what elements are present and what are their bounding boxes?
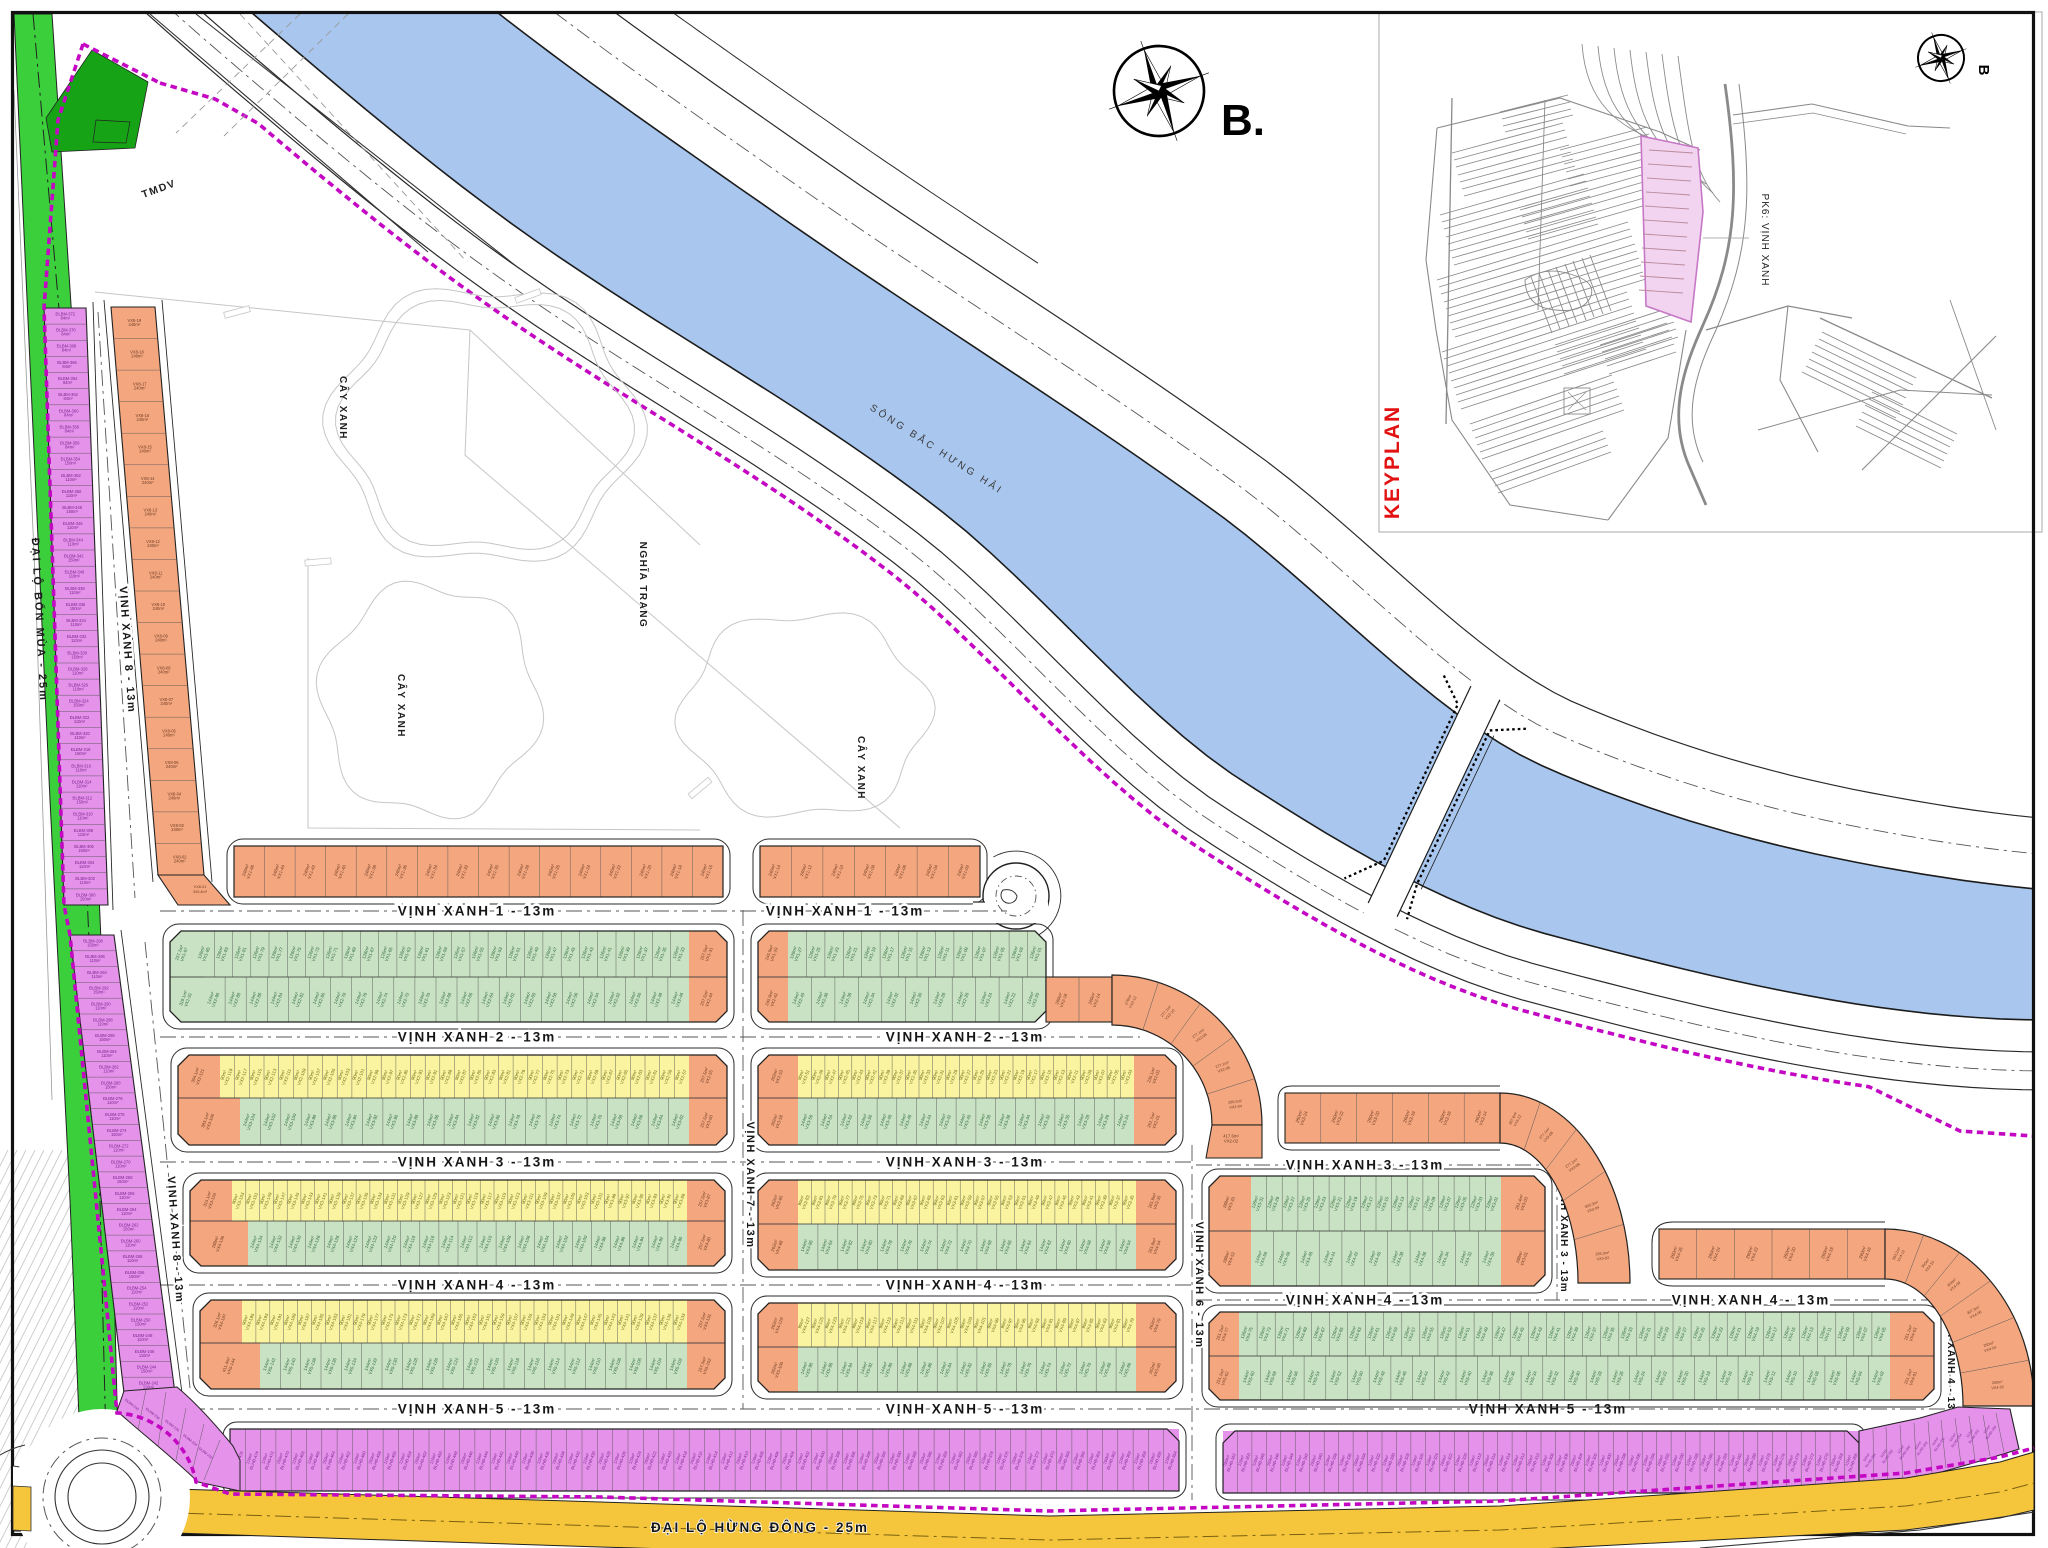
svg-text:110m²: 110m²	[139, 1353, 151, 1358]
svg-text:110m²: 110m²	[73, 687, 85, 692]
svg-text:VỊNH XANH 2 - 13m: VỊNH XANH 2 - 13m	[398, 1030, 557, 1045]
svg-text:110m²: 110m²	[125, 1242, 137, 1247]
svg-text:VỊNH XANH 3 - 13m: VỊNH XANH 3 - 13m	[398, 1155, 557, 1170]
svg-text:KEYPLAN: KEYPLAN	[1381, 405, 1404, 519]
svg-text:NGHĨA TRANG: NGHĨA TRANG	[637, 542, 650, 629]
svg-text:VỊNH XANH 3 - 13m: VỊNH XANH 3 - 13m	[886, 1155, 1045, 1170]
svg-text:84m²: 84m²	[63, 396, 73, 401]
svg-text:110m²: 110m²	[71, 638, 83, 643]
svg-text:VỊNH XANH 1 - 13m: VỊNH XANH 1 - 13m	[766, 904, 925, 919]
svg-text:CÂY XANH: CÂY XANH	[337, 376, 350, 440]
svg-text:VX8-01: VX8-01	[194, 885, 207, 889]
svg-text:110m²: 110m²	[91, 974, 103, 979]
svg-text:240m²: 240m²	[128, 322, 140, 327]
svg-text:110m²: 110m²	[76, 767, 88, 772]
svg-text:240m²: 240m²	[155, 638, 167, 643]
svg-text:110m²: 110m²	[113, 1148, 125, 1153]
svg-text:110m²: 110m²	[67, 525, 79, 530]
svg-text:84m²: 84m²	[61, 316, 71, 321]
svg-text:240m²: 240m²	[142, 480, 154, 485]
svg-text:84m²: 84m²	[63, 380, 73, 385]
svg-text:VỊNH XANH 2 - 13m: VỊNH XANH 2 - 13m	[886, 1030, 1045, 1045]
svg-text:110m²: 110m²	[65, 477, 77, 482]
svg-text:110m²: 110m²	[127, 1258, 139, 1263]
svg-text:150m²: 150m²	[87, 942, 99, 947]
svg-text:110m²: 110m²	[97, 1021, 109, 1026]
svg-text:110m²: 110m²	[76, 783, 88, 788]
svg-text:150m²: 150m²	[78, 848, 90, 853]
svg-text:110m²: 110m²	[119, 1195, 131, 1200]
svg-text:VỊNH XANH 5 - 13m: VỊNH XANH 5 - 13m	[1469, 1402, 1628, 1417]
svg-text:110m²: 110m²	[89, 958, 101, 963]
svg-text:84m²: 84m²	[62, 364, 72, 369]
svg-text:84m²: 84m²	[61, 332, 71, 337]
svg-text:110m²: 110m²	[115, 1163, 127, 1168]
svg-text:240m²: 240m²	[136, 417, 148, 422]
svg-text:417.6m²: 417.6m²	[1223, 1134, 1239, 1139]
svg-text:84m²: 84m²	[65, 428, 75, 433]
svg-text:240m²: 240m²	[147, 543, 159, 548]
svg-text:VỊNH XANH 6 - 13m: VỊNH XANH 6 - 13m	[1193, 1222, 1205, 1349]
svg-text:150m²: 150m²	[75, 751, 87, 756]
svg-text:150m²: 150m²	[70, 606, 82, 611]
svg-text:240m²: 240m²	[160, 701, 172, 706]
svg-text:150m²: 150m²	[76, 800, 88, 805]
svg-text:110m²: 110m²	[137, 1337, 149, 1342]
svg-text:110m²: 110m²	[70, 622, 82, 627]
svg-text:110m²: 110m²	[66, 493, 78, 498]
svg-text:240m²: 240m²	[150, 575, 162, 580]
svg-text:PK6: VỊNH XANH: PK6: VỊNH XANH	[1759, 194, 1770, 287]
svg-text:150m²: 150m²	[99, 1037, 111, 1042]
svg-text:150m²: 150m²	[68, 558, 80, 563]
svg-text:84m²: 84m²	[65, 445, 75, 450]
svg-text:150m²: 150m²	[80, 896, 92, 901]
svg-text:110m²: 110m²	[103, 1069, 115, 1074]
svg-text:150m²: 150m²	[129, 1274, 141, 1279]
svg-text:VỊNH XANH 7 - 13m: VỊNH XANH 7 - 13m	[744, 1122, 756, 1249]
svg-text:B: B	[1975, 65, 1992, 76]
svg-text:150m²: 150m²	[123, 1227, 135, 1232]
svg-text:240m²: 240m²	[144, 512, 156, 517]
svg-text:240m²: 240m²	[163, 732, 175, 737]
svg-text:CÂY XANH: CÂY XANH	[395, 674, 408, 738]
svg-text:240m²: 240m²	[171, 827, 183, 832]
svg-text:150m²: 150m²	[105, 1084, 117, 1089]
svg-text:110m²: 110m²	[101, 1053, 113, 1058]
svg-text:110m²: 110m²	[69, 574, 81, 579]
svg-text:VỊNH XANH 5 - 13m: VỊNH XANH 5 - 13m	[886, 1402, 1045, 1417]
svg-text:VỊNH XANH 4 - 13m: VỊNH XANH 4 - 13m	[1286, 1293, 1445, 1308]
svg-text:B.: B.	[1221, 96, 1265, 145]
svg-text:110m²: 110m²	[69, 590, 81, 595]
svg-text:110m²: 110m²	[133, 1306, 145, 1311]
svg-text:110m²: 110m²	[78, 832, 90, 837]
svg-text:150m²: 150m²	[135, 1321, 147, 1326]
svg-text:VỊNH XANH 1 - 13m: VỊNH XANH 1 - 13m	[398, 904, 557, 919]
svg-text:150m²: 150m²	[66, 509, 78, 514]
svg-text:110m²: 110m²	[95, 1006, 107, 1011]
svg-text:110m²: 110m²	[107, 1100, 119, 1105]
svg-text:VX2-02: VX2-02	[1224, 1139, 1239, 1144]
svg-text:110m²: 110m²	[79, 864, 91, 869]
svg-text:110m²: 110m²	[74, 719, 86, 724]
svg-text:240m²: 240m²	[152, 606, 164, 611]
svg-text:110m²: 110m²	[79, 880, 91, 885]
svg-text:110m²: 110m²	[109, 1116, 121, 1121]
svg-text:349.4m²: 349.4m²	[193, 890, 208, 894]
svg-text:150m²: 150m²	[93, 990, 105, 995]
svg-text:VỊNH XANH 4 - 13m: VỊNH XANH 4 - 13m	[886, 1278, 1045, 1293]
svg-text:110m²: 110m²	[121, 1211, 133, 1216]
svg-text:150m²: 150m²	[73, 703, 85, 708]
svg-text:VỊNH XANH 4 - 13m: VỊNH XANH 4 - 13m	[398, 1278, 557, 1293]
svg-text:VỊNH XANH 5 - 13m: VỊNH XANH 5 - 13m	[398, 1402, 557, 1417]
svg-text:VỊNH XANH 3 - 13m: VỊNH XANH 3 - 13m	[1286, 1158, 1445, 1173]
svg-text:VỊNH XANH 4 - 13m: VỊNH XANH 4 - 13m	[1672, 1293, 1831, 1308]
svg-text:240m²: 240m²	[158, 669, 170, 674]
svg-text:110m²: 110m²	[131, 1290, 143, 1295]
svg-text:240m²: 240m²	[139, 448, 151, 453]
svg-text:110m²: 110m²	[68, 541, 80, 546]
svg-text:110m²: 110m²	[77, 816, 89, 821]
svg-text:84m²: 84m²	[64, 412, 74, 417]
svg-text:150m²: 150m²	[141, 1369, 153, 1374]
svg-text:150m²: 150m²	[65, 461, 77, 466]
svg-text:150m²: 150m²	[111, 1132, 123, 1137]
svg-text:240m²: 240m²	[168, 796, 180, 801]
svg-text:150m²: 150m²	[71, 654, 83, 659]
svg-text:110m²: 110m²	[74, 735, 86, 740]
svg-text:110m²: 110m²	[72, 670, 84, 675]
svg-text:150m²: 150m²	[117, 1179, 129, 1184]
svg-text:240m²: 240m²	[174, 859, 186, 864]
svg-text:240m²: 240m²	[134, 385, 146, 390]
svg-text:CÂY XANH: CÂY XANH	[855, 736, 868, 800]
svg-text:84m²: 84m²	[62, 348, 72, 353]
svg-text:240m²: 240m²	[166, 764, 178, 769]
svg-text:240m²: 240m²	[131, 354, 143, 359]
svg-text:ĐẠI LỘ HỪNG ĐÔNG - 25m: ĐẠI LỘ HỪNG ĐÔNG - 25m	[651, 1520, 869, 1535]
